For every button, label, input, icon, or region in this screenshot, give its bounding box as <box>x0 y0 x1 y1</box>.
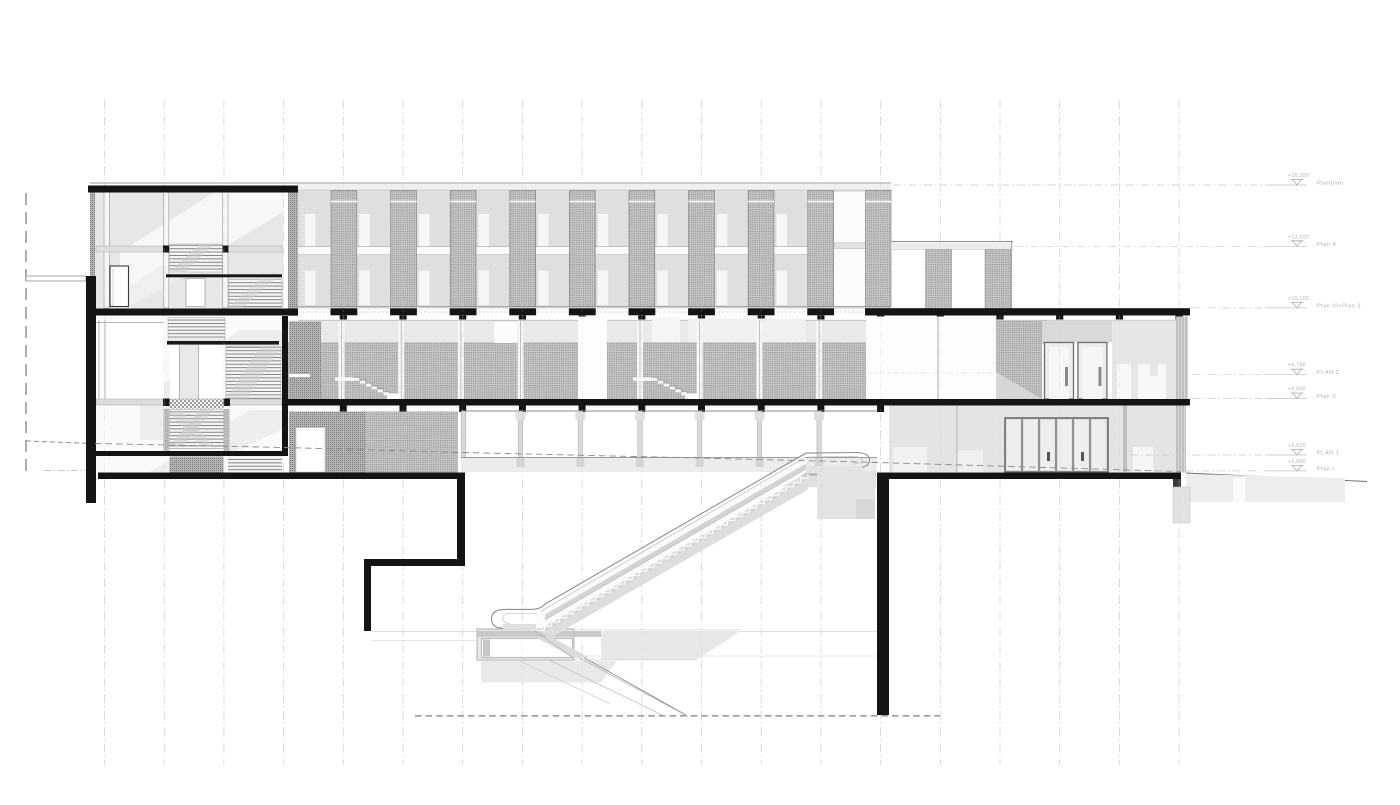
svg-text:+10,100: +10,100 <box>1288 296 1309 302</box>
svg-text:Roofplan: Roofplan <box>1317 181 1343 187</box>
svg-text:+1,800: +1,800 <box>1288 459 1306 465</box>
svg-text:+2,620: +2,620 <box>1288 443 1306 449</box>
svg-text:+5,500: +5,500 <box>1288 387 1306 393</box>
svg-text:+16,300: +16,300 <box>1288 173 1309 179</box>
svg-text:Plan 4: Plan 4 <box>1317 242 1336 248</box>
svg-text:+6,700: +6,700 <box>1288 363 1306 369</box>
svg-text:Plan I: Plan I <box>1317 466 1334 472</box>
svg-text:Plan II: Plan II <box>1317 394 1336 400</box>
svg-text:PLAN 1: PLAN 1 <box>1317 451 1339 457</box>
svg-text:Plan III+Plan 3: Plan III+Plan 3 <box>1317 303 1361 309</box>
svg-text:+13,200: +13,200 <box>1288 234 1309 240</box>
svg-text:PLAN 2: PLAN 2 <box>1317 370 1339 376</box>
